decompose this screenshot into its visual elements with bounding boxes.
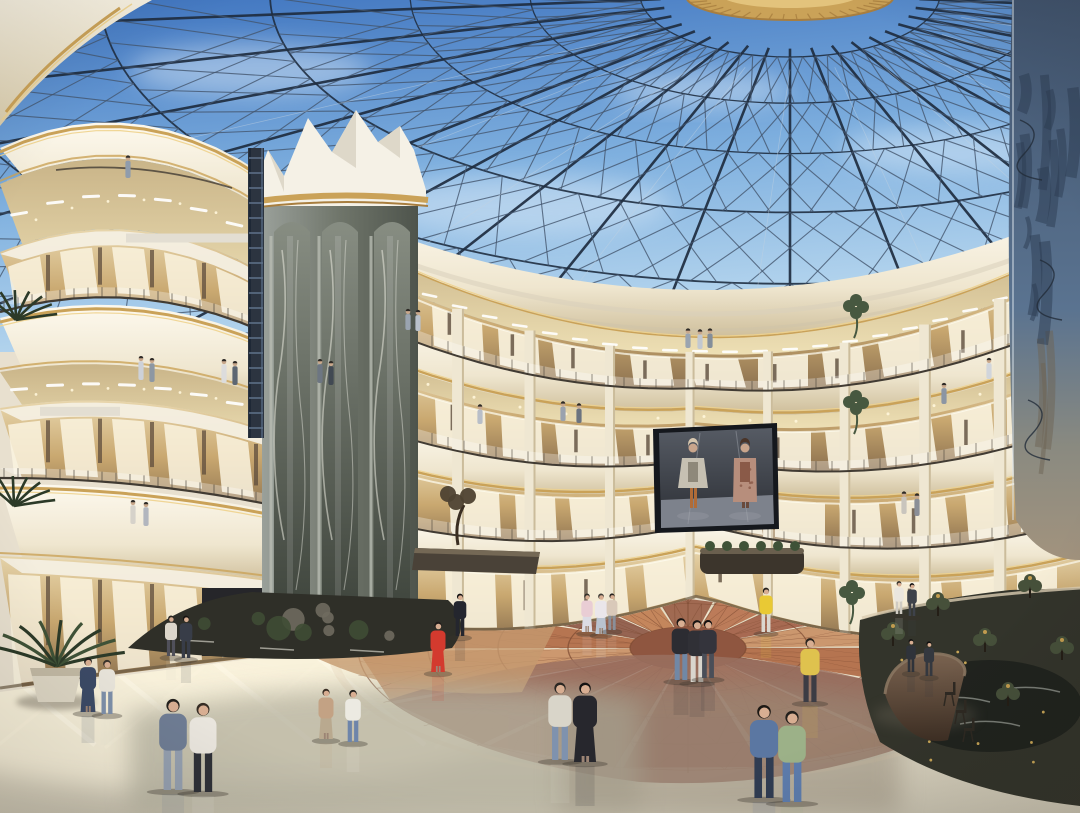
scene-canvas [0, 0, 1080, 813]
mall-atrium-scene [0, 0, 1080, 813]
vignette-overlay [0, 0, 1080, 813]
